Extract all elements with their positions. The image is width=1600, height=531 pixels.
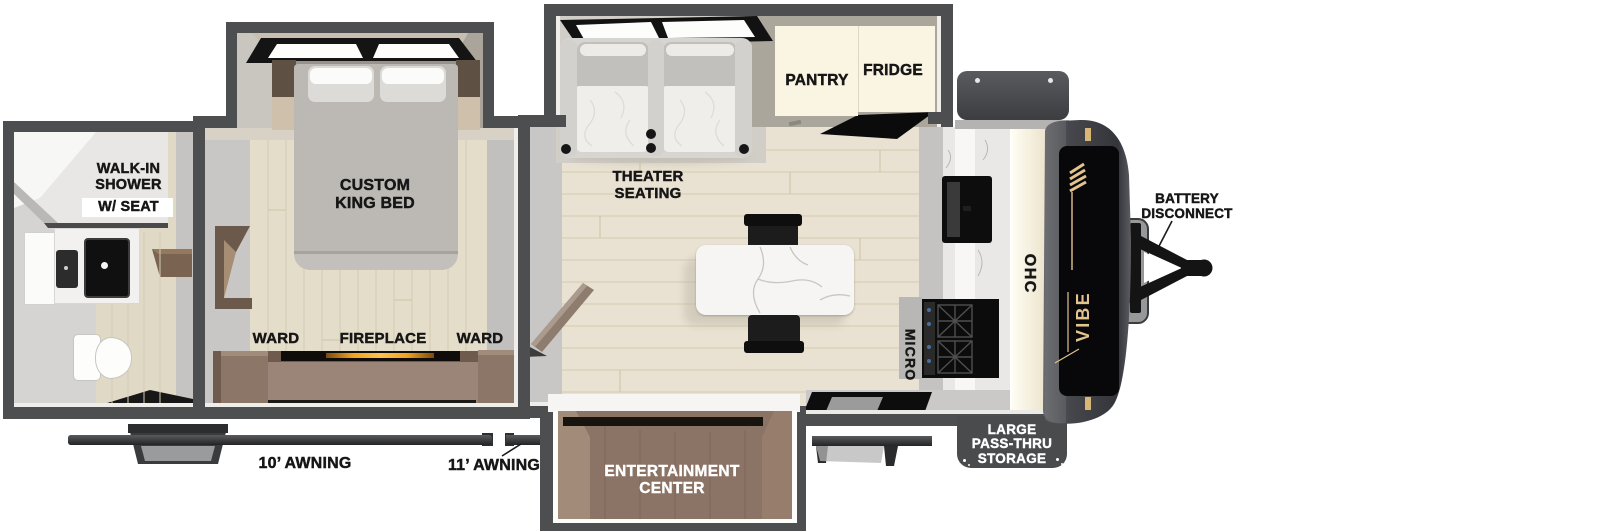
svg-text:VIBE: VIBE (1073, 291, 1093, 342)
